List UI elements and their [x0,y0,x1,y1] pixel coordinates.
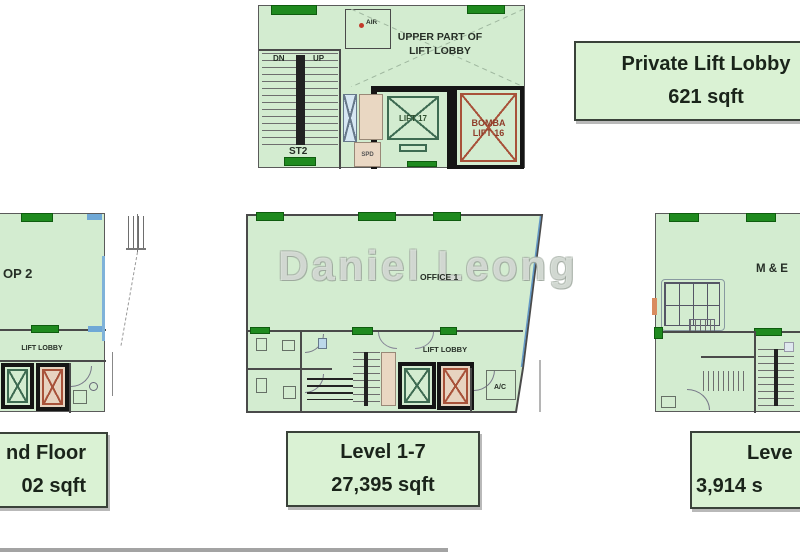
stair-handrail [774,349,778,406]
lift-shaft [404,368,430,403]
toilet-fixture [282,340,295,351]
lift-inner [5,367,30,405]
orange-edge-marker [652,298,657,315]
boundary-dashed-line [121,252,138,346]
page-edge-strip [0,548,448,552]
fixture-icon [89,382,98,391]
callout-private-area: 621 sqft [576,81,800,114]
stairs-down-label: DN [273,54,285,63]
boundary-tick [126,248,146,250]
lift-shaft [7,369,28,403]
bomba-lift-shaft [443,368,468,404]
column-marker [654,327,663,339]
bomba-lift-shaft [42,369,63,405]
stair-handrail [296,55,305,145]
watermark: Daniel Leong [278,242,578,290]
ac-label: A/C [494,384,506,391]
callout-private-title: Private Lift Lobby [576,48,800,81]
bomba-lift-inner [40,367,65,407]
ground-floor-plan: OP 2 LIFT LOBBY [0,213,105,412]
column-marker [754,328,782,336]
wall [259,49,341,51]
callout-level-8: Leve 3,914 s [690,431,800,509]
column-marker [352,327,373,335]
spd-label: SPD [361,152,373,158]
callout-ground-title: nd Floor [0,437,86,470]
wall [247,368,332,370]
toilet-fixture [283,386,296,399]
blue-edge-line [102,256,105,341]
toilet-fixture [256,338,267,351]
boundary-line [137,214,138,252]
toilet-fixture [256,378,267,393]
upper-lift-lobby-plan: DN UP ST2 AIR UPPER PART OF LIFT LOBBY L… [258,5,525,168]
bomba-lift-shaft: BOMBA LIFT 16 [460,93,517,162]
riser-shaft-blue [318,338,327,349]
column-marker [250,327,270,334]
spd-room: SPD [354,142,381,167]
bomba-lift-core: BOMBA LIFT 16 [453,86,524,169]
stair-flight [307,378,353,400]
office-label: OFFICE 1 [420,272,458,282]
column-marker [358,212,396,221]
column-marker [256,212,284,221]
wall [300,330,302,412]
bomba-lift-inner [441,366,470,406]
callout-level-1-7: Level 1-7 27,395 sqft [286,431,480,507]
callout-ground-area: 02 sqft [0,470,86,503]
column-marker [31,325,59,333]
lift-core [398,362,436,409]
me-label: M & E [756,263,788,275]
riser-shaft-tan [359,94,383,140]
wall [470,368,472,412]
stairs-up-label: UP [313,54,324,63]
lift-inner [402,366,432,405]
column-marker [21,213,53,222]
lift-17-door [399,144,427,152]
lift-17-label: LIFT 17 [399,114,427,123]
small-room [73,390,87,404]
riser-shaft-tan [381,352,396,406]
me-floor-plan: M & E [655,213,800,412]
column-marker [746,213,776,222]
boundary-line [112,352,113,396]
floor-plan-sheet: DN UP ST2 AIR UPPER PART OF LIFT LOBBY L… [0,0,800,552]
column-marker [407,161,437,167]
column-marker [440,327,457,335]
stair-flight [703,371,745,391]
column-marker [271,5,317,15]
callout-level17-title: Level 1-7 [288,436,478,469]
riser-shaft-blue [343,94,357,142]
wall [754,331,756,413]
shop-label: OP 2 [3,266,32,281]
door-swing-icon [687,389,710,410]
bomba-lift-label: BOMBA LIFT 16 [467,118,511,138]
boundary-hatch-icon [128,216,144,248]
lift-17-shaft: LIFT 17 [387,96,439,140]
bomba-lift-inner: BOMBA LIFT 16 [457,90,520,165]
upper-lobby-label-line1: UPPER PART OF [398,31,482,43]
callout-private-lift-lobby: Private Lift Lobby 621 sqft [574,41,800,121]
blue-edge-marker [88,326,103,332]
column-marker [433,212,461,221]
callout-ground-floor: nd Floor 02 sqft [0,432,108,508]
wall [339,49,341,169]
bomba-lift-core [437,362,474,410]
column-marker [284,157,316,166]
column-marker [669,213,699,222]
small-room [661,396,676,408]
upper-lobby-label-line2: LIFT LOBBY [409,45,471,57]
upper-lobby-label: UPPER PART OF LIFT LOBBY [359,30,521,58]
wall [0,360,106,362]
callout-level8-title: Leve [692,437,800,470]
wall [701,356,756,358]
riser-shaft-blue [784,342,794,352]
callout-level8-area: 3,914 s [692,470,800,503]
bomba-lift-core [36,363,69,411]
boundary-line [539,360,541,412]
stair-id-label: ST2 [289,146,307,157]
blue-edge-marker [87,214,102,220]
lift-lobby-label: LIFT LOBBY [13,345,71,352]
lift-core [1,363,34,409]
stair-handrail [364,352,368,406]
callout-level17-area: 27,395 sqft [288,469,478,502]
